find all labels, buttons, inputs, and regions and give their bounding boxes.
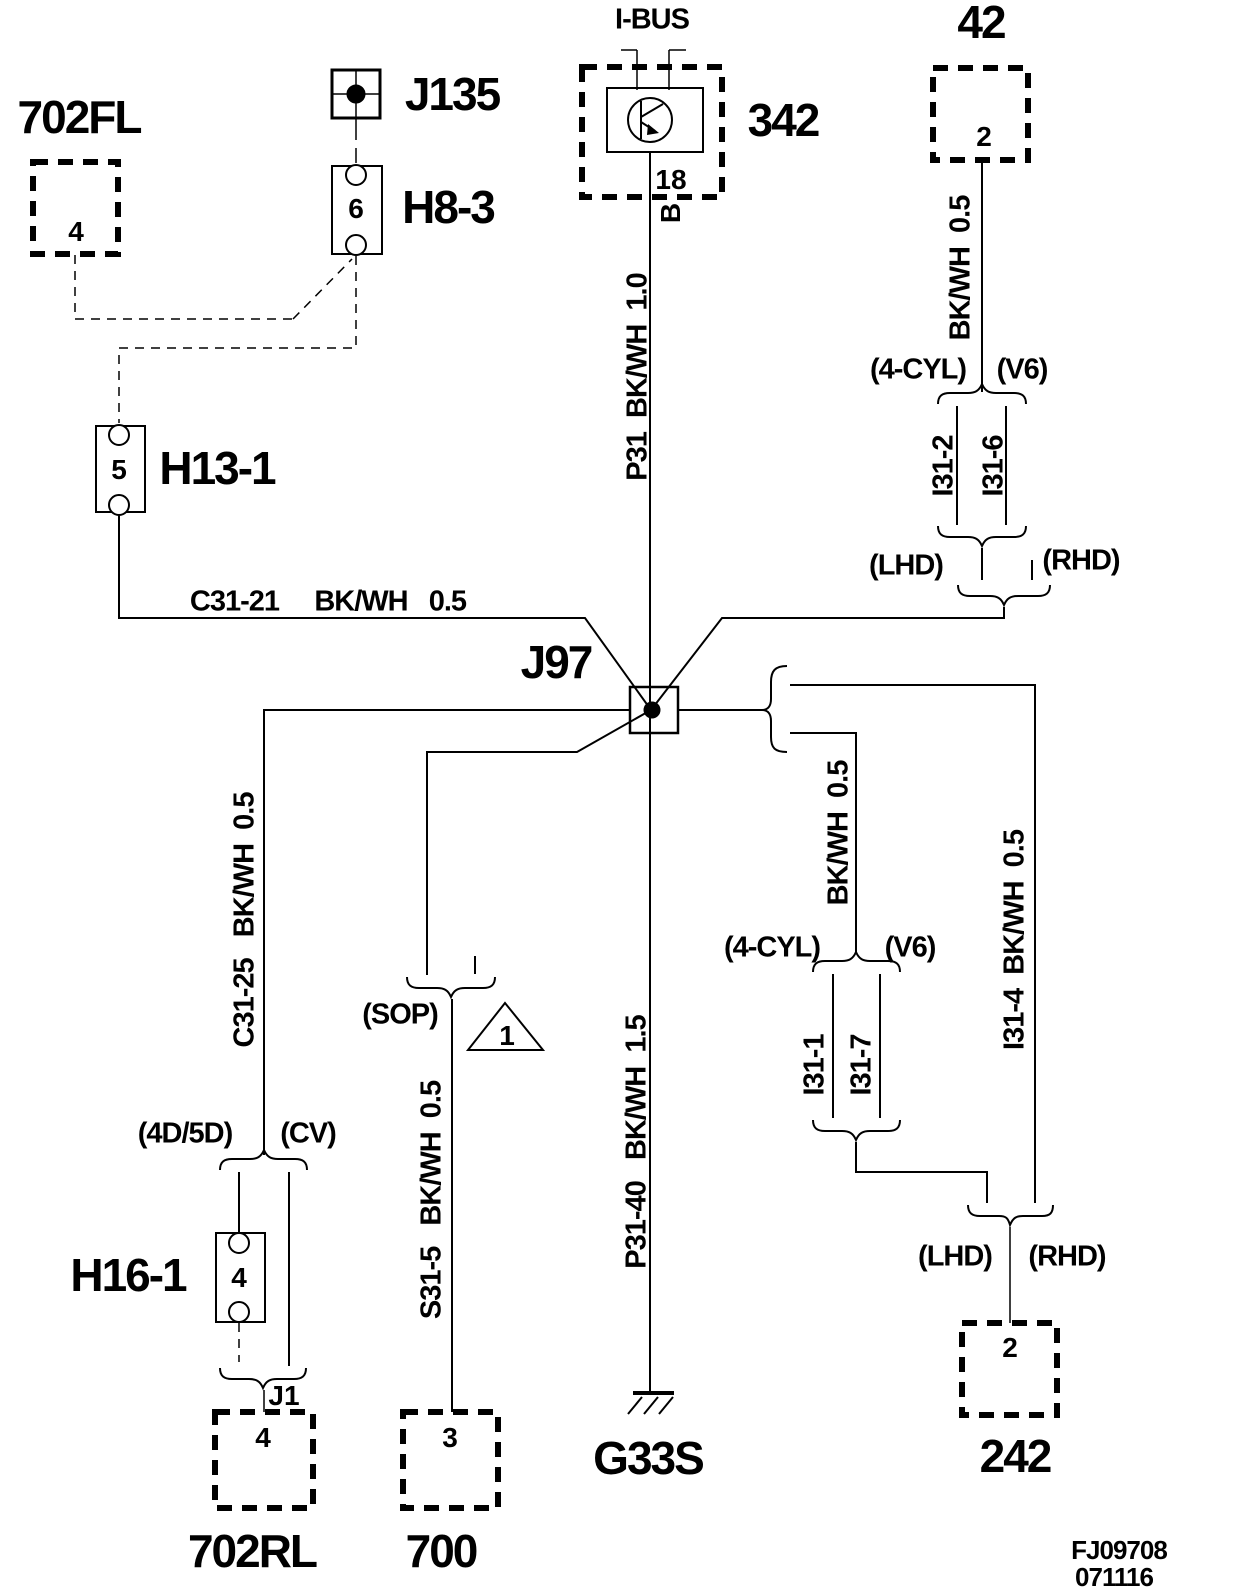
wire-label-p31-40: P31-40 BK/WH 1.5: [623, 1015, 652, 1268]
pin-label-702fl-4: 4: [68, 218, 84, 246]
variant-label-lhd-top: (LHD): [869, 552, 943, 581]
wire-label-i31-2: I31-2: [930, 435, 959, 496]
component-label-342: 342: [748, 97, 819, 143]
wire-label-bkwh-top-right: BK/WH 0.5: [947, 196, 976, 341]
component-label-h8-3: H8-3: [402, 184, 494, 230]
brace-lhd-rhd-bottom-merge: [968, 1205, 1053, 1225]
variant-label-rhd-top: (RHD): [1042, 547, 1119, 576]
wire-lhd-rhd-top-stubs: [982, 548, 1032, 580]
variant-label-v6-mid: (V6): [885, 934, 936, 963]
component-label-42: 42: [957, 0, 1004, 45]
pin-label-242-2: 2: [1002, 1334, 1018, 1362]
variant-label-lhd-bottom: (LHD): [918, 1243, 992, 1272]
wire-label-p31: P31 BK/WH 1.0: [624, 273, 653, 480]
brace-4d5d-cv-split: [220, 1150, 307, 1170]
junction-label-j97: J97: [521, 639, 592, 685]
junction-j97-symbol: [630, 687, 678, 733]
ground-symbol-g33s: [628, 1393, 674, 1414]
component-label-h16-1: H16-1: [70, 1252, 185, 1298]
brace-mid-right-merge: [813, 1120, 900, 1140]
wire-label-s31-5: S31-5 BK/WH 0.5: [418, 1081, 447, 1319]
wire-top-right-to-j97: [651, 607, 1004, 710]
component-342-box: [582, 67, 722, 197]
component-label-700: 700: [406, 1528, 477, 1574]
variant-label-sop: (SOP): [362, 1001, 438, 1030]
ibus-stub-lines: [621, 50, 686, 90]
brace-j97-right-split: [762, 666, 787, 752]
pin-label-42-2: 2: [976, 123, 992, 151]
pin-label-h8-3-6: 6: [348, 195, 364, 223]
wire-label-c31-21: C31-21 BK/WH 0.5: [190, 588, 466, 617]
pin-label-h13-1-5: 5: [111, 456, 127, 484]
variant-label-4cyl-top: (4-CYL): [870, 356, 966, 385]
variant-label-rhd-bottom: (RHD): [1028, 1243, 1105, 1272]
component-label-702fl: 702FL: [18, 94, 141, 140]
pin-label-702rl-4: 4: [255, 1424, 271, 1452]
variant-label-cv: (CV): [280, 1120, 336, 1149]
junction-label-j1: J1: [268, 1382, 299, 1410]
ground-label-g33s: G33S: [593, 1435, 703, 1481]
component-label-702rl: 702RL: [188, 1528, 316, 1574]
wire-mid-right-to-merge: [856, 1142, 987, 1203]
junction-j135-symbol: [332, 70, 380, 118]
pin-label-342-18: 18: [655, 166, 686, 194]
pin-label-342-b: B: [657, 203, 685, 223]
component-label-h13-1: H13-1: [159, 445, 274, 491]
brace-lhd-rhd-top-merge: [958, 585, 1050, 605]
wire-label-i31-6: I31-6: [980, 435, 1009, 496]
dashed-wire-702fl-h8-3-h13-1: [75, 255, 356, 423]
wire-label-c31-25: C31-25 BK/WH 0.5: [231, 793, 260, 1048]
variant-label-4cyl-mid: (4-CYL): [724, 934, 820, 963]
wire-label-i31-4: I31-4 BK/WH 0.5: [1001, 830, 1030, 1050]
drawing-date: 071116: [1075, 1564, 1153, 1590]
wiring-diagram: 702FL 4 J135 H8-3 6 H13-1 5 I-BUS 342 18…: [0, 0, 1248, 1590]
diagram-linework: [0, 0, 1248, 1590]
wire-j97-to-sop: [427, 710, 651, 975]
brace-top-right-merge: [938, 526, 1026, 546]
wire-label-i31-1: I31-1: [801, 1034, 830, 1095]
note-label-triangle-1: 1: [499, 1022, 515, 1050]
brace-sop-merge: [407, 977, 495, 997]
drawing-number: FJ09708: [1071, 1537, 1167, 1563]
bus-label-ibus: I-BUS: [615, 6, 689, 35]
variant-label-4d5d: (4D/5D): [138, 1120, 233, 1149]
wire-label-i31-7: I31-7: [848, 1034, 877, 1095]
pin-label-700-3: 3: [442, 1424, 458, 1452]
pin-label-h16-1-4: 4: [231, 1264, 247, 1292]
component-label-242: 242: [980, 1433, 1051, 1479]
wire-label-bkwh-mid-right: BK/WH 0.5: [825, 761, 854, 906]
component-label-j135: J135: [405, 71, 499, 117]
variant-label-v6-top: (V6): [997, 356, 1048, 385]
